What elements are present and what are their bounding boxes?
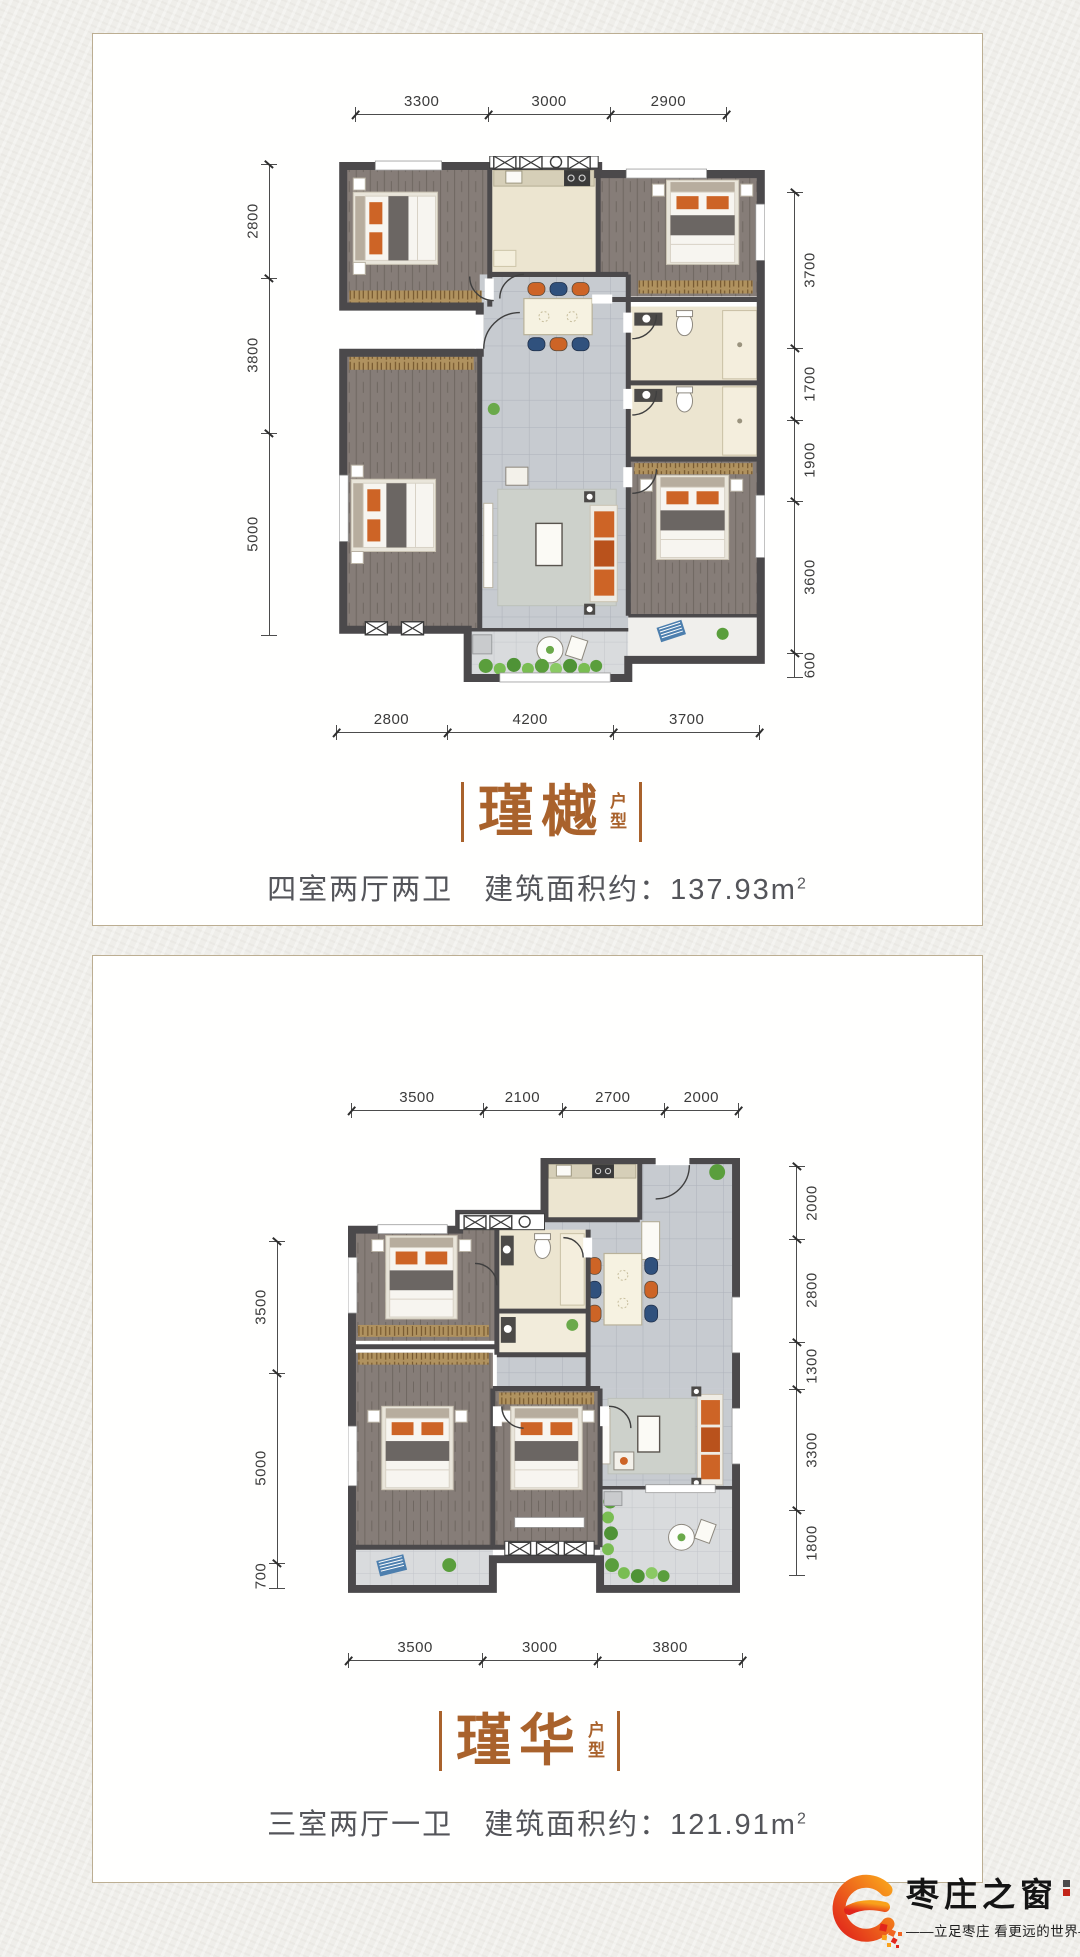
- title-bar-left: [439, 1711, 442, 1771]
- brand-name: 枣庄之窗: [906, 1878, 1058, 1911]
- signature-seal-icon: [1063, 1878, 1070, 1896]
- floorplan-drawing-1: [339, 156, 765, 688]
- page: 330030002900 280038005000 37001700190036…: [0, 0, 1080, 1957]
- dim-label: 700: [253, 1562, 270, 1589]
- dim-label: 3500: [397, 1639, 432, 1656]
- dim-segment: 3500: [253, 1241, 287, 1373]
- dim-segment: 3800: [597, 1638, 743, 1672]
- dim-segment: 3700: [785, 192, 819, 348]
- dim-label: 2800: [804, 1273, 821, 1308]
- dim-segment: 5000: [245, 433, 279, 636]
- plan-name-suffix: 户 型: [610, 792, 627, 833]
- brand-text: 枣庄之窗 ——立足枣庄 看更远的世界——: [906, 1872, 1080, 1940]
- dim-label: 3000: [522, 1639, 557, 1656]
- dim-ruler-top: 330030002900: [355, 92, 727, 126]
- dim-ruler-bottom: 350030003800: [348, 1638, 743, 1672]
- plan-name: 瑾华: [456, 1713, 582, 1769]
- dim-segment: 3500: [351, 1088, 483, 1122]
- floorplan-card-jinyue: 330030002900 280038005000 37001700190036…: [92, 33, 983, 926]
- dim-segment: 1300: [787, 1342, 821, 1390]
- dim-label: 600: [802, 652, 819, 679]
- plant-icon: [717, 628, 729, 640]
- dim-ruler-right: 20002800130033001800: [787, 1166, 821, 1576]
- dim-label: 3300: [404, 93, 439, 110]
- site-brand: 枣庄之窗 ——立足枣庄 看更远的世界——: [824, 1872, 1080, 1952]
- dim-segment: 5000: [253, 1373, 287, 1562]
- plan-title: 瑾樾 户 型: [107, 782, 996, 842]
- dim-segment: 2800: [245, 164, 279, 278]
- plant-icon: [442, 1558, 456, 1572]
- dim-label: 1300: [804, 1348, 821, 1383]
- dim-segment: 3000: [482, 1638, 597, 1672]
- dim-label: 3500: [399, 1089, 434, 1106]
- floorplan-card-jinhua: 3500210027002000 35005000700 20002800130…: [92, 955, 983, 1883]
- dim-label: 3300: [804, 1432, 821, 1467]
- dim-segment: 3600: [785, 501, 819, 653]
- dim-label: 2100: [505, 1089, 540, 1106]
- dim-label: 2800: [245, 203, 262, 238]
- floorplan-1-svg: [339, 156, 765, 688]
- dim-label: 1800: [804, 1525, 821, 1560]
- dim-label: 3700: [669, 711, 704, 728]
- dim-label: 3600: [802, 559, 819, 594]
- dim-segment: 2700: [562, 1088, 664, 1122]
- terrace: [628, 616, 760, 660]
- dim-segment: 2000: [664, 1088, 739, 1122]
- dim-ruler-right: 3700170019003600600: [785, 192, 819, 678]
- brand-tagline: ——立足枣庄 看更远的世界——: [906, 1920, 1080, 1940]
- title-bar-right: [617, 1711, 620, 1771]
- dim-segment: 3700: [613, 710, 760, 744]
- plan-name: 瑾樾: [478, 784, 604, 840]
- dim-ruler-bottom: 280042003700: [336, 710, 760, 744]
- title-bar-left: [461, 782, 464, 842]
- zaozhuang-window-logo-icon: [824, 1872, 904, 1952]
- dim-segment: 3300: [787, 1389, 821, 1510]
- dim-segment: 2100: [483, 1088, 562, 1122]
- dim-segment: 3000: [488, 92, 609, 126]
- dim-ruler-left: 280038005000: [245, 164, 279, 636]
- dim-segment: 2900: [610, 92, 727, 126]
- dim-ruler-top: 3500210027002000: [351, 1088, 739, 1122]
- dim-label: 2800: [374, 711, 409, 728]
- dim-segment: 3800: [245, 278, 279, 433]
- dim-segment: 1700: [785, 348, 819, 420]
- title-bar-right: [639, 782, 642, 842]
- dim-label: 1700: [802, 367, 819, 402]
- dim-segment: 1900: [785, 420, 819, 500]
- dim-label: 3800: [652, 1639, 687, 1656]
- dim-segment: 1800: [787, 1510, 821, 1576]
- dim-segment: 2800: [787, 1239, 821, 1342]
- plan-name-suffix: 户 型: [588, 1721, 605, 1762]
- plant-icon: [709, 1164, 725, 1180]
- dim-ruler-left: 35005000700: [253, 1241, 287, 1589]
- dim-segment: 2000: [787, 1166, 821, 1239]
- plan-summary: 三室两厅一卫 建筑面积约：121.91m2: [93, 1801, 982, 1843]
- floorplan-drawing-2: [348, 1158, 740, 1610]
- dim-label: 4200: [512, 711, 547, 728]
- dim-label: 3800: [245, 338, 262, 373]
- dim-label: 1900: [802, 443, 819, 478]
- dim-label: 2000: [684, 1089, 719, 1106]
- dim-label: 5000: [253, 1450, 270, 1485]
- dim-segment: 700: [253, 1563, 287, 1589]
- dim-segment: 3300: [355, 92, 488, 126]
- dim-label: 3000: [531, 93, 566, 110]
- dim-segment: 600: [785, 653, 819, 678]
- dim-label: 3500: [253, 1290, 270, 1325]
- dim-label: 2700: [595, 1089, 630, 1106]
- plant-icon: [488, 403, 500, 415]
- balcony-left: [352, 1547, 493, 1589]
- dim-label: 2900: [651, 93, 686, 110]
- dim-label: 2000: [804, 1185, 821, 1220]
- dim-segment: 3500: [348, 1638, 482, 1672]
- dim-segment: 4200: [447, 710, 613, 744]
- plant-icon: [566, 1319, 578, 1331]
- plan-summary: 四室两厅两卫 建筑面积约：137.93m2: [93, 866, 982, 908]
- dim-segment: 2800: [336, 710, 447, 744]
- dim-label: 3700: [802, 252, 819, 287]
- floorplan-2-svg: [348, 1158, 740, 1610]
- dim-label: 5000: [245, 517, 262, 552]
- corridor: [497, 1355, 588, 1389]
- plan-title: 瑾华 户 型: [85, 1711, 974, 1771]
